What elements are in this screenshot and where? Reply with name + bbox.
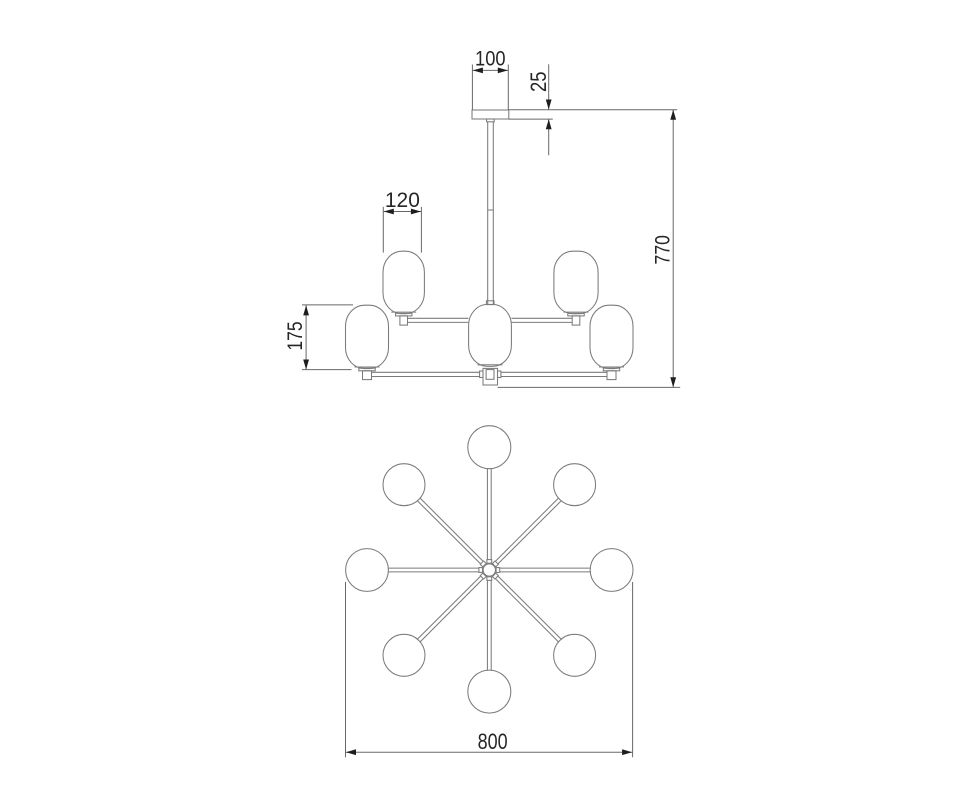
svg-text:770: 770: [651, 235, 674, 264]
svg-text:175: 175: [284, 321, 307, 350]
svg-text:120: 120: [385, 189, 420, 212]
svg-text:100: 100: [475, 47, 506, 71]
svg-text:25: 25: [526, 72, 551, 93]
svg-text:800: 800: [478, 729, 508, 754]
